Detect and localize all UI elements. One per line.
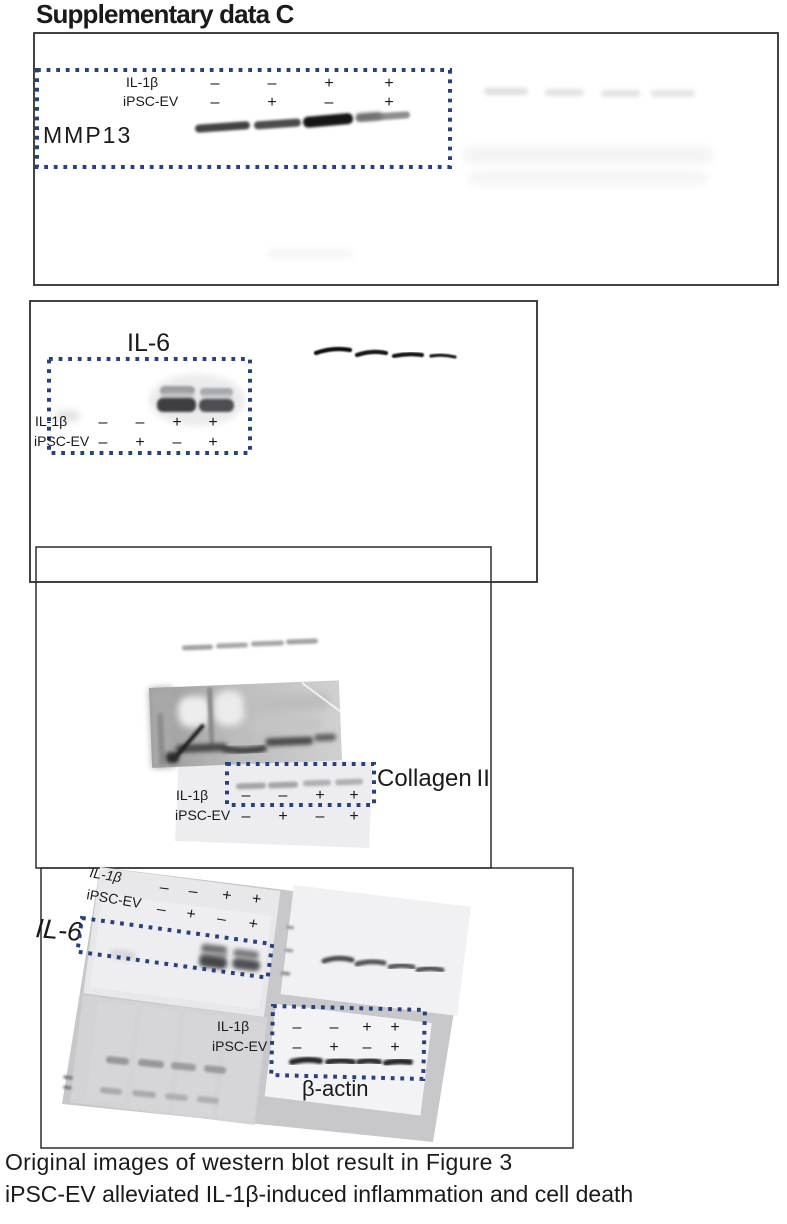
svg-text:+: + — [349, 808, 358, 825]
svg-text:–: – — [242, 787, 251, 804]
svg-text:+: + — [278, 808, 287, 825]
svg-text:–: – — [279, 787, 288, 804]
svg-text:iPSC-EV: iPSC-EV — [212, 1038, 268, 1054]
svg-text:–: – — [136, 414, 145, 431]
svg-text:+: + — [315, 787, 324, 804]
svg-text:+: + — [172, 414, 181, 431]
svg-text:IL-1β: IL-1β — [217, 1018, 249, 1034]
svg-text:IL-6: IL-6 — [34, 913, 84, 947]
svg-text:iPSC-EV alleviated IL-1β-induc: iPSC-EV alleviated IL-1β-induced inflamm… — [5, 1181, 633, 1207]
svg-text:–: – — [330, 1019, 339, 1036]
svg-text:iPSC-EV: iPSC-EV — [34, 433, 90, 449]
svg-text:Original images of western blo: Original images of western blot result i… — [5, 1149, 512, 1175]
svg-text:–: – — [173, 434, 182, 451]
svg-text:MMP13: MMP13 — [43, 122, 132, 148]
svg-text:+: + — [390, 1019, 399, 1036]
svg-text:–: – — [99, 434, 108, 451]
svg-text:+: + — [324, 75, 333, 92]
svg-text:–: – — [242, 808, 251, 825]
svg-text:–: – — [99, 414, 108, 431]
svg-text:IL-1β: IL-1β — [176, 787, 208, 803]
svg-text:+: + — [208, 414, 217, 431]
svg-text:IL-1β: IL-1β — [126, 74, 158, 90]
svg-text:+: + — [349, 787, 358, 804]
svg-text:–: – — [325, 94, 334, 111]
svg-text:+: + — [384, 94, 393, 111]
svg-text:–: – — [268, 75, 277, 92]
svg-text:iPSC-EV: iPSC-EV — [175, 807, 231, 823]
svg-text:+: + — [267, 94, 276, 111]
svg-text:iPSC-EV: iPSC-EV — [123, 93, 179, 109]
svg-text:–: – — [363, 1039, 372, 1056]
svg-text:–: – — [293, 1039, 302, 1056]
svg-text:Collagen II: Collagen II — [377, 765, 490, 792]
svg-text:–: – — [211, 75, 220, 92]
svg-text:–: – — [293, 1019, 302, 1036]
svg-text:–: – — [316, 808, 325, 825]
svg-text:Supplementary data C: Supplementary data C — [36, 0, 295, 29]
svg-text:+: + — [362, 1019, 371, 1036]
svg-text:+: + — [135, 434, 144, 451]
svg-text:+: + — [208, 434, 217, 451]
svg-text:+: + — [384, 75, 393, 92]
svg-text:–: – — [211, 94, 220, 111]
svg-text:IL-1β: IL-1β — [35, 413, 67, 429]
svg-text:β-actin: β-actin — [302, 1076, 368, 1101]
svg-text:+: + — [390, 1039, 399, 1056]
svg-text:+: + — [329, 1039, 338, 1056]
svg-text:IL-6: IL-6 — [127, 329, 170, 357]
